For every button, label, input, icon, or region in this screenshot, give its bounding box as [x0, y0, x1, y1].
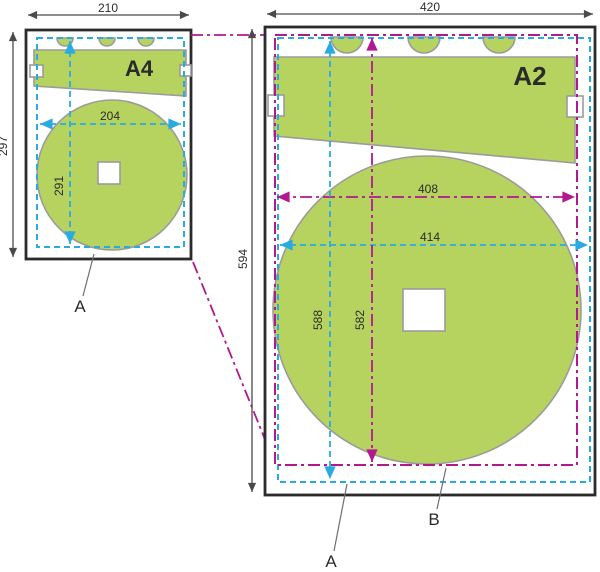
a2-scaled-width-value: 408 [418, 182, 438, 196]
scaled-printing-diagram: A4 204 291 210 297 A [0, 0, 600, 572]
a4-width-dimension: 210 [28, 1, 189, 15]
a4-height-dimension: 297 [0, 32, 13, 257]
a4-content-square-hole [98, 162, 120, 184]
a2-sheet-group: A2 408 414 588 582 420 [236, 0, 595, 571]
a4-height-value: 297 [0, 136, 10, 156]
a2-width-value: 420 [420, 0, 440, 14]
diagram-canvas: A4 204 291 210 297 A [0, 0, 600, 572]
a2-document-content: A2 [268, 37, 583, 464]
a4-size-label: A4 [125, 56, 154, 81]
a2-height-dimension: 594 [236, 29, 252, 492]
a2-width-dimension: 420 [267, 0, 593, 14]
a2-height-value: 594 [236, 249, 250, 269]
a4-print-width-value: 204 [100, 109, 120, 123]
a2-content-square-hole [403, 289, 445, 331]
a4-callout-label: A [74, 297, 86, 316]
a2-scaled-area-callout-label: B [428, 510, 439, 529]
a4-width-value: 210 [98, 1, 118, 15]
a4-document-content: A4 [30, 38, 191, 250]
a4-sheet-group: A4 204 291 210 297 A [0, 1, 191, 316]
a2-print-height-value: 588 [311, 310, 325, 330]
a4-print-height-value: 291 [52, 176, 66, 196]
a2-print-width-value: 414 [420, 230, 440, 244]
a4-band-notch-right [180, 65, 191, 76]
a2-size-label: A2 [513, 61, 546, 91]
a2-scaled-height-value: 582 [353, 310, 367, 330]
a2-band-notch-right [567, 96, 583, 117]
scale-connector-bottom [193, 262, 275, 464]
a2-print-area-callout-label: A [325, 552, 337, 571]
